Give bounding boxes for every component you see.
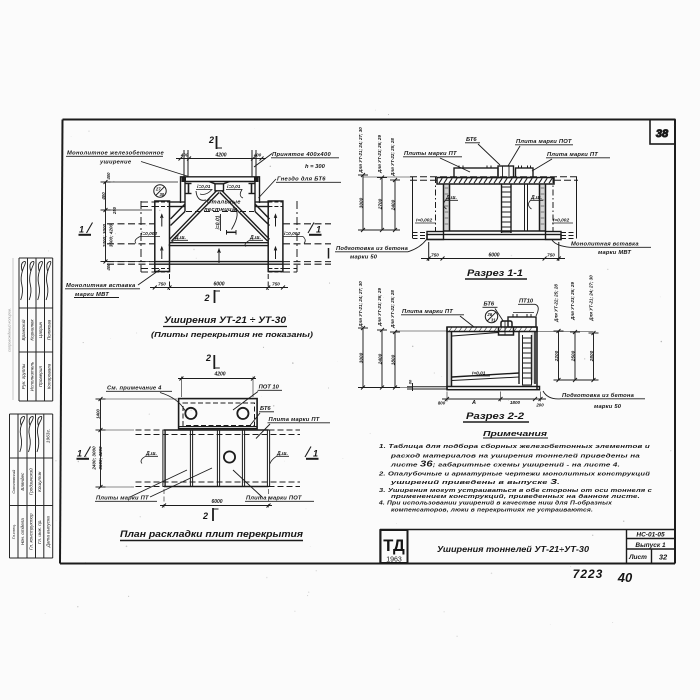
- svg-text:Примечания: Примечания: [483, 429, 548, 438]
- svg-text:200: 200: [535, 403, 544, 408]
- svg-text:40: 40: [617, 570, 633, 585]
- svg-text:ПТ10: ПТ10: [519, 299, 534, 305]
- svg-text:31: 31: [491, 318, 496, 323]
- svg-text:Лист: Лист: [628, 554, 647, 561]
- svg-text:Разрез 2-2: Разрез 2-2: [466, 411, 525, 422]
- svg-text:компенсаторов, люки в перекрыт: компенсаторов, люки в перекрытиях не уст…: [391, 508, 593, 514]
- svg-text:Плиты марки ПТ: Плиты марки ПТ: [96, 496, 149, 502]
- svg-text:1963: 1963: [386, 557, 402, 564]
- svg-text:Подготовка из бетона: Подготовка из бетона: [336, 245, 409, 252]
- svg-text:Плита марки ПТ: Плита марки ПТ: [402, 309, 453, 315]
- svg-text:Гнездо для БТ6: Гнездо для БТ6: [277, 177, 326, 183]
- svg-text:Гл. инж. пр.: Гл. инж. пр.: [37, 519, 42, 544]
- svg-text:ТД: ТД: [383, 537, 405, 555]
- svg-text:h = 300: h = 300: [305, 164, 326, 170]
- svg-text:Плита марки ПТ: Плита марки ПТ: [547, 152, 598, 158]
- svg-text:1400: 1400: [95, 409, 100, 419]
- svg-text:3600; 4200: 3600; 4200: [98, 446, 103, 470]
- svg-text:400: 400: [101, 192, 106, 201]
- svg-text:1: 1: [77, 449, 82, 459]
- svg-text:2800: 2800: [589, 350, 594, 362]
- svg-text:1800: 1800: [510, 400, 521, 405]
- svg-text:марки 50: марки 50: [350, 255, 378, 261]
- svg-text:3000: 3000: [358, 197, 363, 208]
- svg-text:400: 400: [253, 153, 262, 158]
- svg-text:марки МВТ: марки МВТ: [75, 292, 109, 298]
- svg-text:Соколовский: Соколовский: [11, 469, 16, 494]
- svg-text:Монолитная вставка: Монолитная вставка: [571, 242, 639, 248]
- svg-text:2400; 3000: 2400; 3000: [102, 223, 107, 248]
- svg-text:Дата выпуска: Дата выпуска: [46, 516, 51, 548]
- svg-text:6000: 6000: [213, 282, 224, 288]
- svg-text:Проверил: Проверил: [38, 366, 43, 387]
- svg-text:Для УТ-22; 25; 28: Для УТ-22; 25; 28: [390, 138, 395, 177]
- svg-text:См. примечание 4: См. примечание 4: [107, 386, 162, 392]
- svg-text:Принятое 400х400: Принятое 400х400: [272, 152, 331, 158]
- svg-text:750: 750: [272, 282, 280, 287]
- svg-text:2200: 2200: [554, 350, 559, 362]
- svg-text:Плита марки ПТ: Плита марки ПТ: [269, 417, 320, 423]
- svg-text:Для УТ-21; 24; 27; 30: Для УТ-21; 24; 27; 30: [358, 281, 363, 328]
- svg-text:Разрез 1-1: Разрез 1-1: [467, 268, 523, 279]
- svg-text:2: 2: [204, 293, 210, 303]
- svg-text:4200: 4200: [214, 153, 226, 159]
- svg-text:Цаприн: Цаприн: [38, 321, 43, 338]
- svg-text:27: 27: [155, 187, 161, 192]
- svg-text:Гл.спец.: Гл.спец.: [11, 524, 16, 539]
- svg-text:250: 250: [112, 206, 117, 215]
- svg-text:Уширения УТ-21 ÷ УТ-30: Уширения УТ-21 ÷ УТ-30: [164, 315, 287, 326]
- svg-text:400: 400: [180, 153, 189, 158]
- svg-text:Для УТ-23; 26; 29: Для УТ-23; 26; 29: [377, 135, 382, 174]
- svg-text:3600; 4200: 3600; 4200: [108, 223, 113, 247]
- svg-text:Корнилюк: Корнилюк: [29, 319, 34, 341]
- svg-text:3000: 3000: [358, 352, 363, 363]
- svg-text:1: 1: [79, 225, 84, 235]
- svg-text:4200: 4200: [213, 372, 225, 378]
- svg-text:1800: 1800: [390, 354, 395, 365]
- svg-text:26: 26: [486, 312, 492, 317]
- svg-text:Для УТ-23; 26; 29: Для УТ-23; 26; 29: [570, 282, 575, 321]
- svg-text:Для УТ-21; 24; 27; 30: Для УТ-21; 24; 27; 30: [358, 127, 363, 174]
- svg-text:750: 750: [158, 282, 166, 287]
- svg-text:1: 1: [316, 225, 321, 235]
- svg-text:БТ6: БТ6: [260, 406, 271, 412]
- svg-text:Стальные: Стальные: [207, 200, 241, 206]
- svg-text:2400: 2400: [390, 199, 395, 211]
- svg-text:2: 2: [202, 511, 208, 521]
- svg-text:Для УТ-21; 24; 27; 30: Для УТ-21; 24; 27; 30: [588, 275, 593, 322]
- svg-text:Плиты марки ПТ: Плиты марки ПТ: [404, 151, 457, 157]
- svg-text:Монолитная вставка: Монолитная вставка: [66, 283, 136, 289]
- svg-text:уширение: уширение: [99, 160, 132, 166]
- svg-text:А: А: [471, 400, 476, 406]
- svg-text:2500: 2500: [570, 350, 575, 362]
- svg-text:расход материалов на уширения: расход материалов на уширения тоннелей п…: [390, 453, 641, 460]
- svg-text:ПОТ 10: ПОТ 10: [259, 385, 280, 391]
- svg-text:(Плиты перекрытия не показаны): (Плиты перекрытия не показаны): [151, 330, 314, 339]
- svg-text:марки МВТ: марки МВТ: [598, 250, 631, 256]
- svg-text:Кошутин: Кошутин: [37, 471, 42, 492]
- svg-text:38: 38: [656, 128, 669, 140]
- svg-text:Полякова: Полякова: [46, 319, 51, 340]
- svg-text:6000: 6000: [488, 253, 499, 259]
- svg-text:План раскладки плит перекрытия: План раскладки плит перекрытия: [120, 529, 303, 540]
- svg-text:Уширения тоннелей УТ-21÷УТ-30: Уширения тоннелей УТ-21÷УТ-30: [437, 544, 589, 554]
- svg-text:2400: 2400: [377, 353, 382, 365]
- svg-text:лестницы: лестницы: [203, 207, 237, 213]
- svg-text:6000: 6000: [211, 499, 222, 505]
- svg-text:3. Уширения могут устраиваться: 3. Уширения могут устраиваться в обе сто…: [379, 487, 653, 494]
- svg-text:БТ6: БТ6: [484, 302, 495, 308]
- svg-text:Вражский: Вражский: [20, 319, 26, 340]
- svg-text:80: 80: [408, 379, 413, 384]
- svg-text:30: 30: [159, 192, 164, 197]
- svg-text:Бляндес: Бляндес: [20, 472, 25, 491]
- svg-text:1963г.: 1963г.: [46, 429, 52, 443]
- svg-text:2400; 3000: 2400; 3000: [91, 446, 96, 471]
- svg-text:Рук. группы: Рук. группы: [21, 363, 26, 389]
- svg-text:1: 1: [313, 449, 318, 459]
- svg-text:7223: 7223: [573, 567, 604, 581]
- svg-text:400: 400: [106, 263, 111, 272]
- svg-text:БТ6: БТ6: [466, 137, 477, 143]
- svg-text:марки 50: марки 50: [594, 404, 622, 410]
- svg-text:применением конструкций, приве: применением конструкций, приведенных на …: [391, 493, 640, 500]
- svg-text:Для УТ-22; 25; 28: Для УТ-22; 25; 28: [553, 284, 558, 323]
- svg-text:1. Таблица для подбора сборных: 1. Таблица для подбора сборных железобет…: [379, 443, 650, 450]
- svg-text:Монолитное железобетонное: Монолитное железобетонное: [67, 150, 165, 157]
- svg-text:Для УТ-23; 26; 29: Для УТ-23; 26; 29: [377, 288, 382, 327]
- svg-text:800: 800: [438, 401, 446, 406]
- svg-text:750: 750: [431, 253, 439, 258]
- svg-text:2. Опалубочные и арматурные че: 2. Опалубочные и арматурные чертежи моно…: [378, 471, 651, 478]
- svg-text:Плита марки ПОТ: Плита марки ПОТ: [246, 496, 302, 502]
- svg-text:НС-01-05: НС-01-05: [636, 532, 665, 539]
- svg-text:Исполнитель: Исполнитель: [29, 361, 34, 391]
- svg-text:сопровождений копиров.: сопровождений копиров.: [8, 308, 12, 352]
- svg-text:2: 2: [208, 135, 214, 145]
- svg-text:400: 400: [106, 172, 111, 181]
- svg-text:32: 32: [659, 553, 668, 562]
- svg-text:4. При использовании уширений: 4. При использовании уширений в качестве…: [378, 500, 613, 507]
- svg-text:Для УТ-22; 25; 28: Для УТ-22; 25; 28: [390, 290, 395, 329]
- svg-text:750: 750: [547, 253, 555, 258]
- svg-text:Выпуск 1: Выпуск 1: [635, 542, 666, 549]
- svg-text:Плита марки ПОТ: Плита марки ПОТ: [516, 139, 572, 145]
- svg-text:2: 2: [205, 353, 211, 363]
- svg-text:Гродзинский: Гродзинский: [28, 468, 34, 495]
- svg-text:Нач. отдела: Нач. отдела: [20, 518, 25, 545]
- svg-text:Подготовка из бетона: Подготовка из бетона: [562, 392, 635, 399]
- svg-text:2700: 2700: [377, 198, 382, 210]
- svg-text:Копировала: Копировала: [46, 363, 51, 389]
